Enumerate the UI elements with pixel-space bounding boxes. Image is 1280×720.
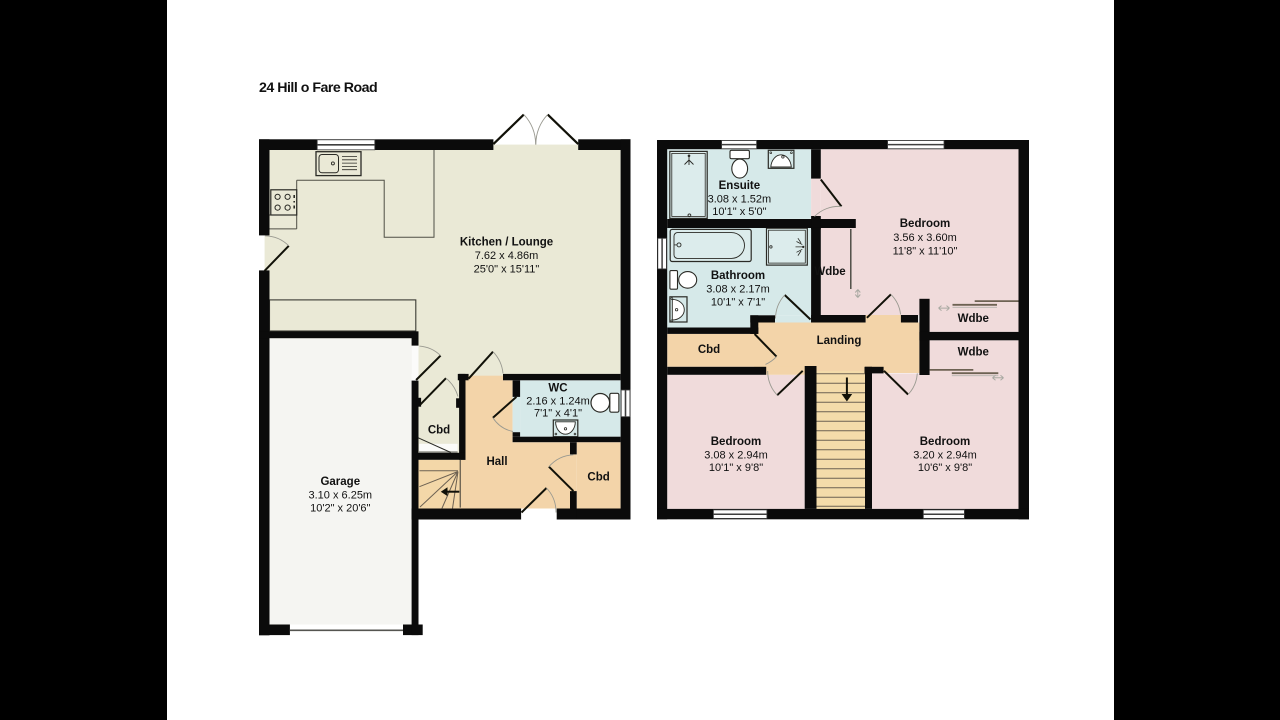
- svg-text:3.10 x 6.25m: 3.10 x 6.25m: [309, 490, 373, 502]
- svg-text:7.62 x 4.86m: 7.62 x 4.86m: [475, 250, 539, 262]
- svg-text:Wdbe: Wdbe: [958, 313, 989, 325]
- svg-text:Kitchen / Lounge: Kitchen / Lounge: [460, 237, 553, 249]
- svg-text:2.16 x 1.24m: 2.16 x 1.24m: [526, 395, 590, 407]
- svg-text:Hall: Hall: [486, 456, 507, 468]
- svg-text:11'8" x 11'10": 11'8" x 11'10": [893, 245, 958, 257]
- svg-text:10'1" x 5'0": 10'1" x 5'0": [712, 206, 766, 218]
- svg-text:Cbd: Cbd: [698, 344, 720, 356]
- svg-text:Bathroom: Bathroom: [711, 270, 765, 282]
- svg-text:Bedroom: Bedroom: [711, 436, 761, 448]
- svg-text:10'1" x 9'8": 10'1" x 9'8": [709, 462, 763, 474]
- svg-text:3.56 x 3.60m: 3.56 x 3.60m: [893, 232, 957, 244]
- svg-text:Landing: Landing: [817, 335, 862, 347]
- svg-text:Bedroom: Bedroom: [900, 218, 950, 230]
- svg-text:24 Hill o Fare Road: 24 Hill o Fare Road: [259, 80, 377, 96]
- svg-text:Garage: Garage: [320, 476, 360, 488]
- svg-text:Bedroom: Bedroom: [920, 436, 970, 448]
- svg-text:Cbd: Cbd: [428, 425, 450, 437]
- svg-text:3.08 x 1.52m: 3.08 x 1.52m: [708, 193, 772, 205]
- svg-text:7'1" x 4'1": 7'1" x 4'1": [534, 408, 582, 420]
- svg-text:10'6" x 9'8": 10'6" x 9'8": [918, 462, 972, 474]
- svg-text:10'1" x 7'1": 10'1" x 7'1": [711, 296, 765, 308]
- svg-text:25'0" x 15'11": 25'0" x 15'11": [474, 264, 540, 276]
- svg-text:10'2" x 20'6": 10'2" x 20'6": [310, 503, 370, 515]
- svg-text:Ensuite: Ensuite: [719, 180, 761, 192]
- svg-text:3.20 x 2.94m: 3.20 x 2.94m: [913, 449, 977, 461]
- svg-text:Wdbe: Wdbe: [958, 347, 989, 359]
- svg-text:3.08 x 2.94m: 3.08 x 2.94m: [704, 449, 768, 461]
- svg-text:Wdbe: Wdbe: [814, 266, 845, 278]
- svg-text:Cbd: Cbd: [587, 471, 609, 483]
- svg-text:WC: WC: [548, 382, 567, 394]
- svg-text:3.08 x 2.17m: 3.08 x 2.17m: [706, 283, 770, 295]
